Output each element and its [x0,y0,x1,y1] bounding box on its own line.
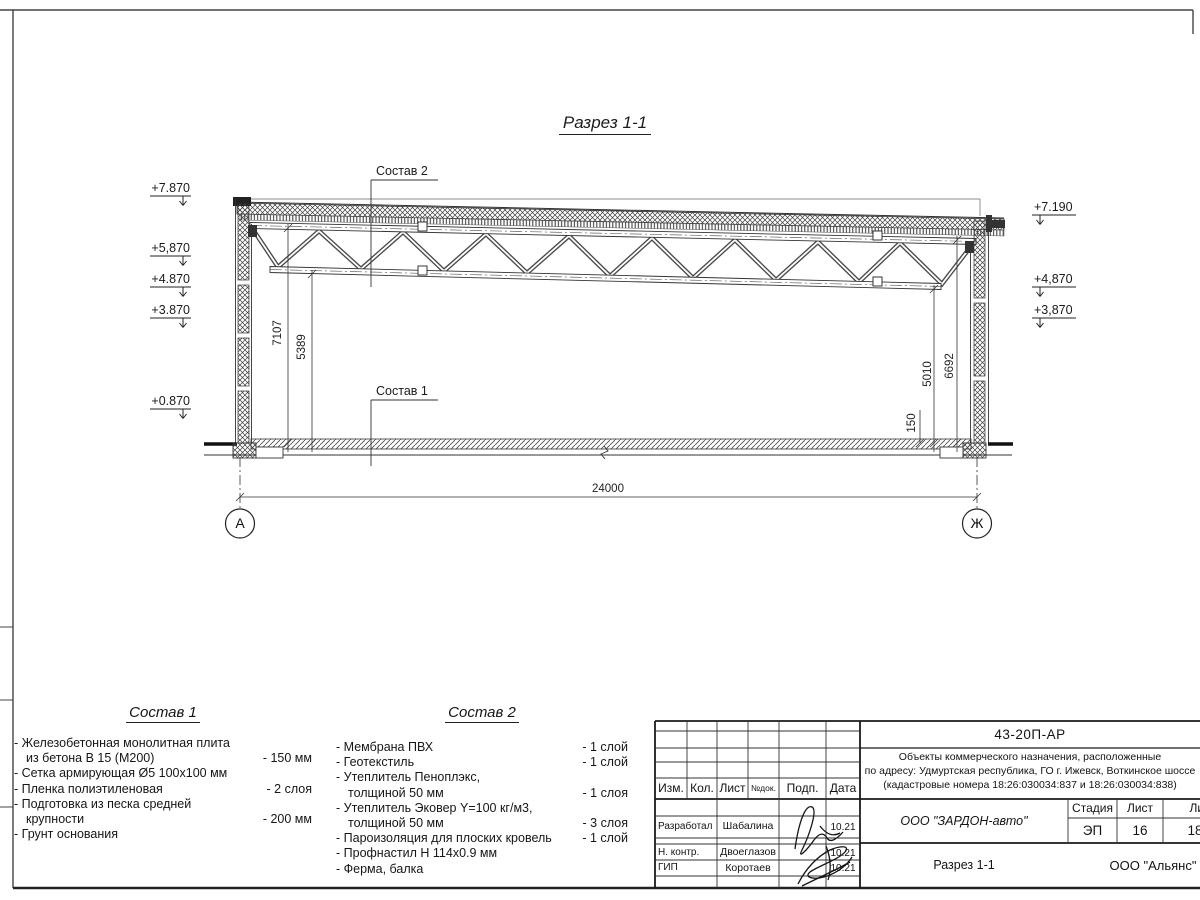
elevation-label: +3,870 [1034,303,1073,317]
sostav2-block: Состав 2 - Мембрана ПВХ- 1 слой - Геотек… [336,704,628,877]
titleblock-project-line3: (кадастровые номера 18:26:030034:837 и 1… [862,779,1198,792]
dimension-height: 6692 [944,336,958,396]
titleblock-role: Разработал [658,821,712,832]
spec-line: - Утеплитель Пеноплэкс, [336,770,628,785]
titleblock-role: ГИП [658,862,678,873]
titleblock-doc-number: 43-20П-АР [860,721,1200,748]
titleblock-header-data: Дата [826,778,860,799]
titleblock-org: ООО "Альянс" [1068,843,1200,888]
elevation-label: +7.870 [130,181,190,195]
titleblock-date: 10.21 [826,863,860,874]
spec-line: - Пароизоляция для плоских кровель- 1 сл… [336,831,628,846]
titleblock-sheet-title: Разрез 1-1 [860,843,1068,888]
titleblock-header-podp: Подп. [779,778,826,799]
titleblock-listov-value: 18 [1163,818,1200,843]
truss-support-right [965,241,974,253]
titleblock-company: ООО "ЗАРДОН-авто" [860,799,1068,843]
elevation-label: +7.190 [1034,200,1073,214]
titleblock-date: 10.21 [826,822,860,833]
spec-line: - Мембрана ПВХ- 1 слой [336,740,628,755]
spec-line: - Грунт основания [14,827,312,842]
spec-line: - Подготовка из песка средней [14,797,312,812]
titleblock-stadia-value: ЭП [1068,818,1117,843]
callout-sostav1: Состав 1 [376,384,428,398]
footing-left [233,443,256,458]
titleblock-header-kol: Кол. [687,778,717,799]
titleblock-header-izm: Изм. [655,778,687,799]
spec-line: - Железобетонная монолитная плита [14,736,312,751]
titleblock-header-listov: Листов [1163,799,1200,818]
spec-line: - Профнастил Н 114х0.9 мм [336,846,628,861]
elevation-label: +4.870 [130,272,190,286]
roof-right-cap [986,215,992,232]
spec-line: толщиной 50 мм- 1 слоя [336,786,628,801]
dimension-height: 7107 [272,303,286,363]
elevation-label: +3.870 [130,303,190,317]
titleblock-name: Коротаев [717,862,779,874]
elevation-label: +5,870 [130,241,190,255]
dimension-height: 5389 [296,317,310,377]
sostav1-title: Состав 1 [14,704,312,721]
axis-label-zh: Ж [963,515,991,531]
titleblock-project-line2: по адресу: Удмуртская республика, ГО г. … [862,765,1198,778]
titleblock-role: Н. контр. [658,847,699,858]
spec-line: крупности- 200 мм [14,812,312,827]
elevation-label: +4,870 [1034,272,1073,286]
spec-line: - Геотекстиль- 1 слой [336,755,628,770]
section-view-title: Разрез 1-1 [525,113,685,133]
dimension-slab: 150 [906,403,920,443]
titleblock-name: Двоеглазов [717,846,779,858]
sostav1-block: Состав 1 - Железобетонная монолитная пли… [14,704,312,842]
dimension-height: 5010 [922,344,936,404]
titleblock-project-line1: Объекты коммерческого назначения, распол… [862,751,1198,764]
axis-markers [226,509,992,538]
spec-line: - Пленка полиэтиленовая- 2 слоя [14,782,312,797]
titleblock-list-value: 16 [1117,818,1163,843]
titleblock-name: Шабалина [717,820,779,832]
signatures [795,807,852,886]
dimension-lines [236,224,981,509]
footing-right [963,443,986,458]
callout-sostav2: Состав 2 [376,164,428,178]
titleblock-header-list: Лист [717,778,748,799]
drawing-sheet: Разрез 1-1 Состав 2 Состав 1 +7.870 +5,8… [0,0,1200,900]
spec-line: - Сетка армирующая Ø5 100х100 мм [14,766,312,781]
dimension-span: 24000 [560,483,656,495]
elevation-label: +0.870 [130,394,190,408]
sostav2-title: Состав 2 [336,704,628,721]
titleblock-date: 10.21 [826,848,860,859]
titleblock-header-ndok: №док. [748,778,779,799]
titleblock-header-stadia: Стадия [1068,799,1117,818]
spec-line: - Ферма, балка [336,862,628,877]
axis-label-a: А [226,515,254,531]
titleblock-header-list2: Лист [1117,799,1163,818]
floor-slab [204,439,1013,459]
column-left [236,199,252,443]
spec-line: из бетона В 15 (М200)- 150 мм [14,751,312,766]
spec-line: толщиной 50 мм- 3 слоя [336,816,628,831]
truss-support-left [248,225,257,237]
spec-line: - Утеплитель Эковер Y=100 кг/м3, [336,801,628,816]
